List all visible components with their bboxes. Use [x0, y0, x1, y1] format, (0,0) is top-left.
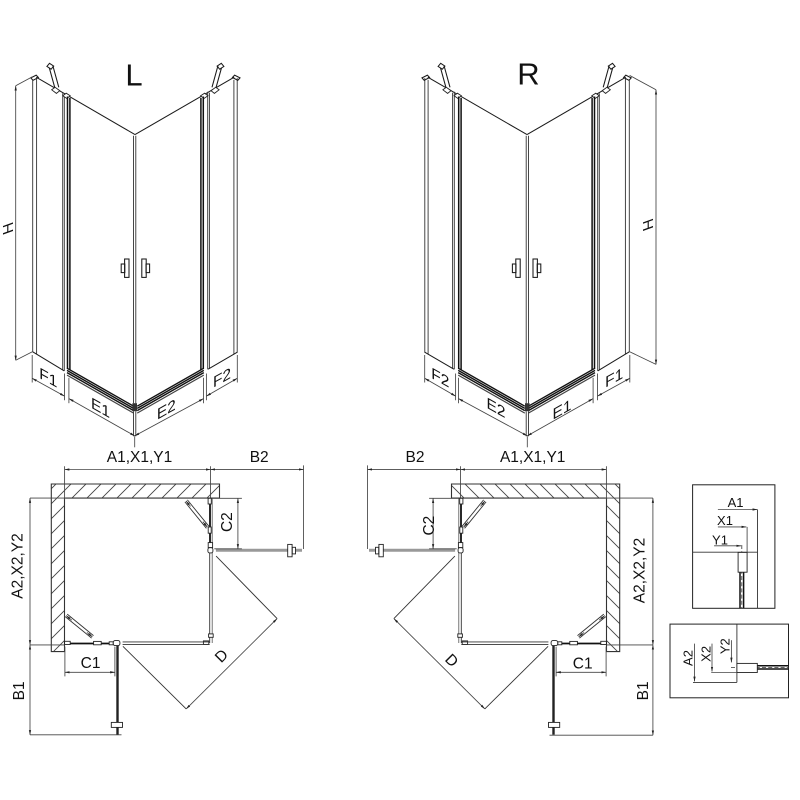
svg-text:R: R	[517, 56, 539, 91]
svg-text:C2: C2	[421, 516, 438, 536]
svg-text:D: D	[212, 646, 232, 666]
svg-text:X2: X2	[699, 646, 714, 662]
svg-text:A2,X2,Y2: A2,X2,Y2	[10, 533, 27, 599]
svg-text:B1: B1	[635, 681, 652, 700]
svg-text:C1: C1	[573, 656, 593, 673]
svg-text:B2: B2	[250, 449, 269, 466]
svg-text:E2: E2	[157, 395, 176, 423]
svg-text:H: H	[1, 220, 17, 237]
svg-text:C1: C1	[81, 655, 101, 672]
svg-text:E1: E1	[553, 395, 572, 423]
svg-text:A2: A2	[680, 650, 695, 666]
svg-text:B1: B1	[11, 681, 28, 700]
svg-text:Y1: Y1	[712, 533, 728, 548]
svg-text:F1: F1	[605, 364, 623, 392]
svg-text:X1: X1	[717, 513, 733, 528]
svg-text:H: H	[639, 217, 655, 234]
svg-text:B2: B2	[406, 449, 425, 466]
svg-text:C2: C2	[219, 512, 236, 532]
svg-text:A1,X1,Y1: A1,X1,Y1	[107, 449, 173, 466]
svg-text:A2,X2,Y2: A2,X2,Y2	[632, 538, 649, 604]
svg-text:D: D	[441, 651, 461, 671]
svg-text:L: L	[125, 57, 142, 92]
svg-text:A1,X1,Y1: A1,X1,Y1	[500, 449, 566, 466]
svg-text:Y2: Y2	[718, 638, 733, 654]
svg-text:A1: A1	[728, 495, 744, 510]
